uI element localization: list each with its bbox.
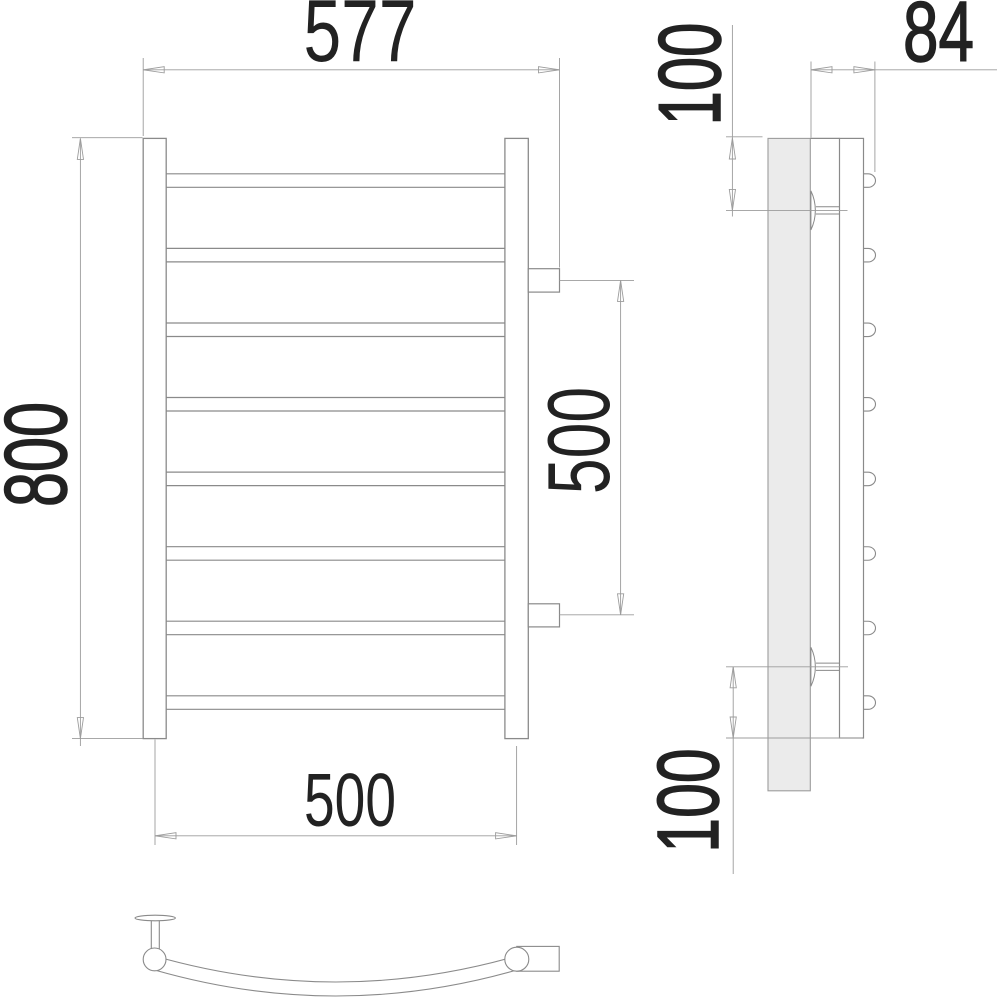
svg-text:500: 500 bbox=[530, 387, 628, 494]
svg-text:84: 84 bbox=[903, 0, 974, 79]
svg-text:577: 577 bbox=[303, 0, 416, 80]
svg-text:100: 100 bbox=[641, 23, 739, 126]
svg-text:800: 800 bbox=[0, 402, 86, 507]
svg-text:500: 500 bbox=[304, 758, 396, 842]
svg-text:100: 100 bbox=[640, 748, 738, 853]
